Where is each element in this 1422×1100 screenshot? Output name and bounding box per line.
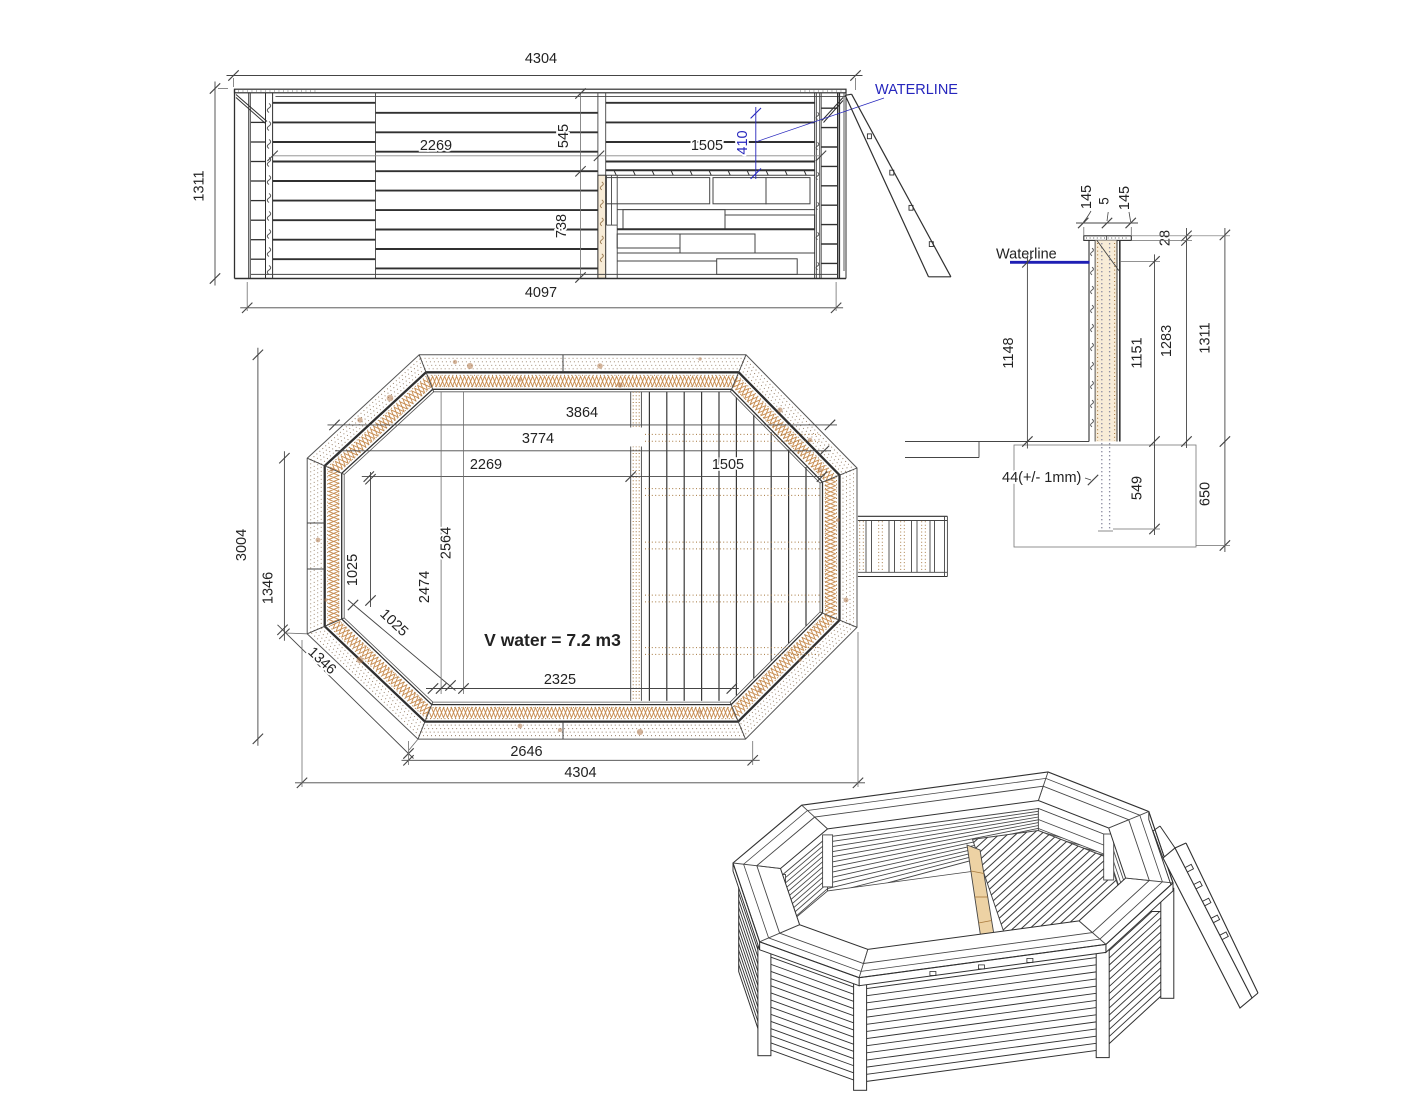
svg-text:1311: 1311 bbox=[1198, 322, 1214, 353]
svg-text:410: 410 bbox=[735, 130, 751, 154]
svg-text:4304: 4304 bbox=[525, 51, 557, 67]
svg-text:2269: 2269 bbox=[470, 457, 502, 473]
svg-text:145: 145 bbox=[1079, 185, 1095, 209]
svg-text:1148: 1148 bbox=[1001, 337, 1017, 368]
svg-text:44(+/- 1mm): 44(+/- 1mm) bbox=[1002, 470, 1081, 486]
svg-text:28: 28 bbox=[1158, 230, 1174, 246]
svg-text:4304: 4304 bbox=[564, 765, 596, 781]
svg-text:2269: 2269 bbox=[420, 138, 452, 154]
svg-text:1283: 1283 bbox=[1159, 325, 1175, 357]
svg-text:1025: 1025 bbox=[345, 554, 361, 586]
svg-text:Waterline: Waterline bbox=[996, 247, 1057, 263]
svg-text:1505: 1505 bbox=[712, 457, 744, 473]
svg-text:2646: 2646 bbox=[510, 744, 542, 760]
svg-text:3864: 3864 bbox=[566, 405, 598, 421]
svg-text:5: 5 bbox=[1097, 197, 1112, 205]
svg-text:2325: 2325 bbox=[544, 672, 576, 688]
svg-text:650: 650 bbox=[1198, 482, 1214, 506]
svg-text:738: 738 bbox=[554, 214, 570, 238]
svg-text:1346: 1346 bbox=[261, 572, 277, 604]
svg-text:WATERLINE: WATERLINE bbox=[875, 82, 958, 98]
svg-text:4097: 4097 bbox=[525, 285, 557, 301]
svg-text:3004: 3004 bbox=[234, 529, 250, 561]
svg-text:145: 145 bbox=[1117, 186, 1133, 210]
svg-text:3774: 3774 bbox=[522, 431, 554, 447]
svg-text:V water = 7.2 m3: V water = 7.2 m3 bbox=[484, 630, 621, 650]
svg-text:545: 545 bbox=[556, 124, 572, 148]
svg-text:1311: 1311 bbox=[192, 170, 208, 201]
svg-text:2564: 2564 bbox=[439, 527, 455, 559]
svg-text:2474: 2474 bbox=[417, 571, 433, 603]
svg-text:1505: 1505 bbox=[691, 138, 723, 154]
svg-text:1025: 1025 bbox=[377, 606, 411, 640]
svg-text:1151: 1151 bbox=[1130, 337, 1146, 368]
svg-text:549: 549 bbox=[1130, 476, 1146, 500]
